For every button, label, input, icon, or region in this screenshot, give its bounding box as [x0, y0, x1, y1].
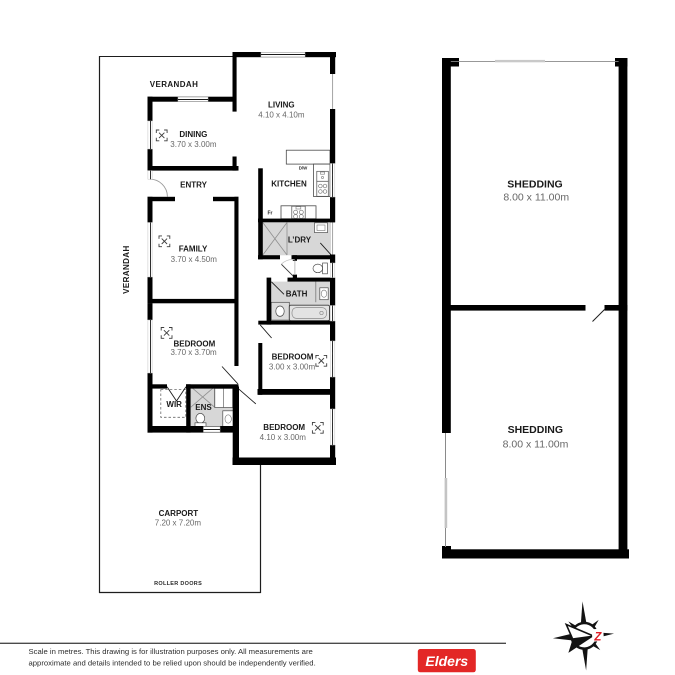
svg-text:KITCHEN: KITCHEN: [271, 179, 307, 188]
svg-text:WIR: WIR: [166, 400, 182, 409]
svg-text:ENS: ENS: [195, 403, 212, 412]
svg-text:BATH: BATH: [286, 289, 308, 298]
svg-text:VERANDAH: VERANDAH: [150, 80, 199, 89]
svg-text:SHEDDING: SHEDDING: [508, 424, 563, 436]
svg-text:3.70 x 3.70m: 3.70 x 3.70m: [170, 348, 217, 357]
svg-text:3.70 x 3.00m: 3.70 x 3.00m: [170, 140, 217, 149]
svg-text:SHEDDING: SHEDDING: [507, 179, 562, 191]
svg-text:8.00 x 11.00m: 8.00 x 11.00m: [503, 439, 569, 451]
svg-text:3.70 x 4.50m: 3.70 x 4.50m: [171, 255, 218, 264]
svg-text:VERANDAH: VERANDAH: [122, 245, 131, 294]
svg-text:Z: Z: [593, 632, 602, 644]
svg-text:8.00 x 11.00m: 8.00 x 11.00m: [503, 192, 569, 204]
svg-text:Elders: Elders: [425, 653, 468, 669]
svg-text:Fr: Fr: [268, 210, 273, 216]
svg-text:FAMILY: FAMILY: [179, 244, 208, 253]
svg-text:L’DRY: L’DRY: [288, 235, 312, 244]
svg-text:BEDROOM: BEDROOM: [263, 423, 305, 432]
svg-text:approximate and details intend: approximate and details intended to be r…: [29, 658, 316, 667]
svg-text:Scale in metres. This drawing: Scale in metres. This drawing is for ill…: [29, 647, 313, 656]
svg-text:DINING: DINING: [179, 130, 207, 139]
svg-text:ENTRY: ENTRY: [180, 180, 207, 189]
svg-text:3.00 x 3.00m: 3.00 x 3.00m: [269, 362, 316, 371]
svg-text:LIVING: LIVING: [268, 100, 295, 109]
svg-text:D/W: D/W: [299, 165, 308, 170]
svg-text:7.20 x 7.20m: 7.20 x 7.20m: [155, 518, 202, 527]
svg-text:BEDROOM: BEDROOM: [272, 352, 314, 361]
svg-text:4.10 x 4.10m: 4.10 x 4.10m: [258, 110, 305, 119]
svg-text:CARPORT: CARPORT: [159, 509, 199, 518]
svg-text:ROLLER DOORS: ROLLER DOORS: [154, 581, 202, 587]
svg-text:BEDROOM: BEDROOM: [174, 339, 216, 348]
svg-text:4.10 x 3.00m: 4.10 x 3.00m: [260, 433, 307, 442]
